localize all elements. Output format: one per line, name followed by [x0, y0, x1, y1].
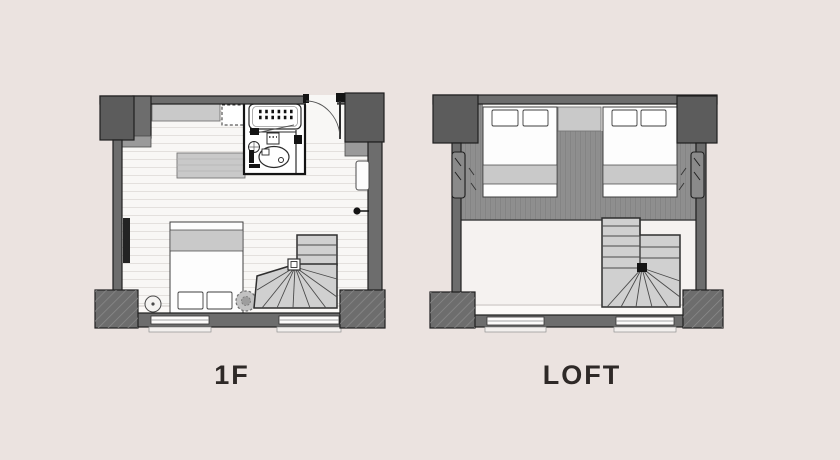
pillar-icon [433, 95, 478, 143]
wall-right-1f [368, 142, 382, 292]
double-bed-icon [170, 222, 243, 313]
pillar-icon [677, 96, 717, 143]
single-bed-icon [483, 107, 557, 197]
wall-tv-icon [123, 218, 130, 263]
table-icon [177, 153, 245, 178]
bathroom-unit-icon [244, 100, 305, 174]
faucet-icon [250, 128, 259, 135]
pillar-icon [100, 96, 134, 140]
washlet-control-icon [267, 133, 279, 144]
floorplan-1f [95, 93, 385, 332]
kitchen-counter-icon [152, 104, 220, 121]
single-bed-icon [603, 107, 677, 197]
stool-icon [145, 296, 161, 312]
plan-label-1f: 1F [95, 357, 369, 393]
plant-icon [236, 291, 256, 311]
nightstand-icon [558, 107, 601, 131]
toilet-icon [259, 147, 289, 168]
wall-left-1f [113, 140, 122, 292]
floorplan-loft [430, 95, 723, 332]
appliance-dashed-icon [222, 105, 246, 125]
pillar-icon [345, 93, 384, 142]
wall-shelf-icon [356, 161, 369, 190]
plan-label-loft: LOFT [436, 357, 728, 393]
floorplan-image: 1F LOFT [0, 0, 840, 460]
